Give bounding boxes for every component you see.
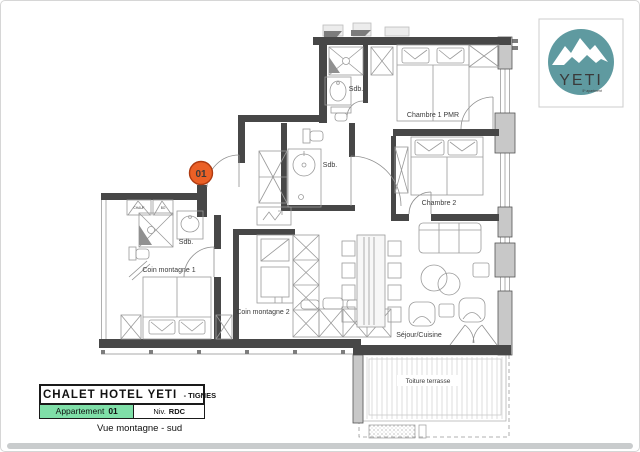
label-sdb2: Sdb. (323, 162, 337, 169)
logo-text: YETI (559, 72, 603, 89)
label-closet2: BO (161, 206, 166, 210)
label-sdb1: Sdb. (349, 86, 363, 93)
label-chambre2: Chambre 2 (422, 200, 457, 207)
hotel-name: CHALET HOTEL YETI (43, 389, 177, 401)
bathroom2-fixtures (288, 129, 323, 207)
info-row: Appartement01 Niv.RDC (39, 405, 205, 419)
balcony-edge (101, 350, 353, 354)
label-sdb3: Sdb. (179, 239, 193, 246)
label-coin1: Coin montagne 1 (142, 267, 195, 274)
bathroom1-fixtures (325, 47, 363, 121)
apartment-label: Appartement (56, 406, 105, 416)
floorplan-page: Sdb. Chambre 1 PMR Sdb. Chambre 2 Sdb. C… (0, 0, 640, 452)
apartment-cell: Appartement01 (40, 405, 134, 418)
label-chambre1: Chambre 1 PMR (407, 112, 459, 119)
hotel-location: - TIGNES (184, 391, 217, 400)
apartment-marker: 01 (190, 162, 213, 185)
apartment-marker-label: 01 (195, 169, 207, 180)
apartment-number: 01 (108, 406, 117, 416)
roof-terrace (359, 351, 509, 438)
label-coin2: Coin montagne 2 (236, 309, 289, 316)
sejour-furniture (342, 223, 489, 327)
logo-tagline: 5* apartment (582, 89, 602, 93)
label-terrasse: Toiture terrasse (406, 378, 451, 385)
chambre1-furniture (371, 45, 499, 121)
level-value: RDC (169, 407, 185, 416)
page-edge-bar (7, 443, 633, 449)
title-block: CHALET HOTEL YETI - TIGNES Appartement01… (39, 384, 205, 434)
label-sejour: Séjour/Cuisine (396, 332, 442, 339)
walls (99, 37, 511, 355)
yeti-logo: YETI 5* apartment (539, 19, 623, 107)
view-caption: Vue montagne - sud (97, 423, 205, 434)
level-label: Niv. (153, 407, 165, 416)
label-closet1: CHAUF (134, 206, 145, 210)
title-row: CHALET HOTEL YETI - TIGNES (39, 384, 205, 405)
level-cell: Niv.RDC (134, 405, 204, 418)
adjacent-unit-ghost (323, 23, 518, 50)
bathroom3-fixtures (129, 211, 203, 260)
chambre2-furniture (395, 137, 483, 195)
